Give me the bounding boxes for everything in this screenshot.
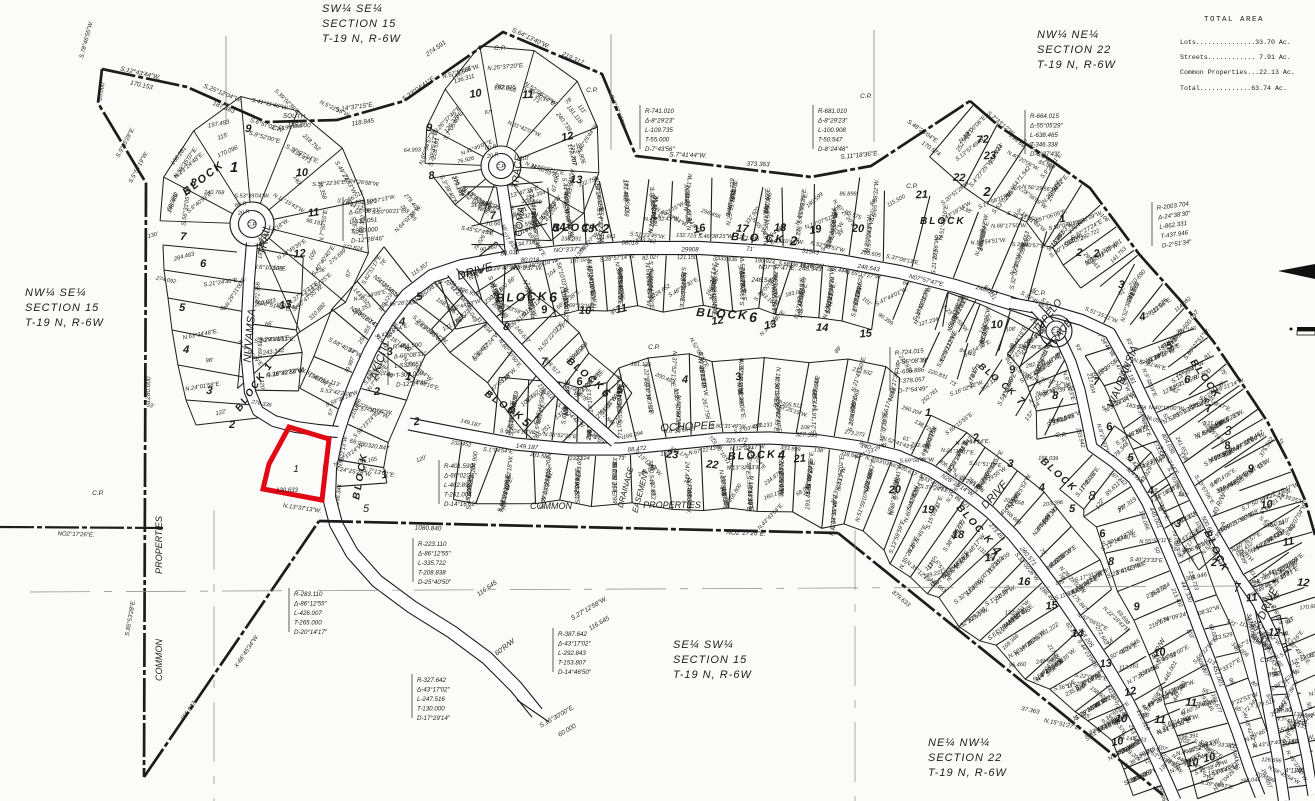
svg-text:T-19 N, R-6W: T-19 N, R-6W	[928, 767, 1007, 779]
svg-text:14: 14	[816, 322, 829, 335]
svg-text:373.363: 373.363	[746, 161, 770, 169]
svg-text:R-387.642: R-387.642	[558, 631, 587, 638]
svg-text:232.224: 232.224	[568, 456, 589, 462]
svg-text:64.993: 64.993	[404, 147, 422, 154]
svg-text:S.69°08'45"W.: S.69°08'45"W.	[899, 457, 935, 464]
svg-text:132.241: 132.241	[575, 478, 581, 500]
svg-text:6: 6	[749, 309, 758, 326]
svg-text:S.46°38'23"W.: S.46°38'23"W.	[698, 234, 734, 240]
svg-text:1: 1	[293, 464, 299, 475]
svg-text:TOTAL AREA: TOTAL AREA	[1204, 16, 1264, 24]
svg-text:9: 9	[426, 122, 433, 134]
svg-text:102': 102'	[1180, 738, 1192, 745]
svg-text:R-283.110: R-283.110	[294, 591, 323, 598]
svg-text:21: 21	[914, 189, 928, 202]
svg-text:T-208.838: T-208.838	[418, 570, 446, 577]
svg-text:D-25°40′50″: D-25°40′50″	[418, 579, 452, 586]
svg-text:T-55.000: T-55.000	[645, 137, 670, 144]
svg-text:T-50.547: T-50.547	[818, 137, 843, 144]
svg-text:2: 2	[789, 233, 799, 248]
svg-text:PROPERTIES: PROPERTIES	[643, 500, 701, 510]
svg-text:71': 71'	[746, 246, 755, 253]
svg-text:SECTION 15: SECTION 15	[673, 654, 747, 666]
svg-text:238.391: 238.391	[560, 236, 581, 242]
svg-text:NO°3′37″W.: NO°3′37″W.	[511, 266, 543, 272]
svg-text:3: 3	[1118, 279, 1125, 291]
svg-text:SECTION 22: SECTION 22	[1037, 44, 1111, 56]
svg-text:8: 8	[1108, 556, 1115, 568]
svg-text:S.53°39'04"W.: S.53°39'04"W.	[234, 194, 270, 200]
svg-text:C.P.: C.P.	[494, 45, 506, 52]
svg-text:C.P.: C.P.	[860, 93, 872, 100]
svg-text:6: 6	[549, 289, 558, 305]
svg-text:R-741.010: R-741.010	[645, 108, 674, 115]
svg-text:L-247.516: L-247.516	[417, 696, 445, 703]
svg-text:155.839: 155.839	[1268, 570, 1288, 576]
svg-text:2: 2	[412, 416, 421, 429]
svg-text:NW¼ NE¼: NW¼ NE¼	[1037, 29, 1099, 41]
svg-text:C.P.: C.P.	[1055, 432, 1067, 439]
svg-text:T-19 N, R-6W: T-19 N, R-6W	[322, 33, 401, 45]
svg-text:T-19 N, R-6W: T-19 N, R-6W	[25, 317, 104, 329]
svg-text:108': 108'	[1005, 326, 1017, 333]
svg-text:R-223.110: R-223.110	[418, 541, 447, 548]
svg-text:3: 3	[206, 385, 213, 398]
svg-text:15: 15	[859, 327, 873, 340]
svg-text:110': 110'	[519, 156, 530, 163]
svg-text:L-462.892: L-462.892	[444, 482, 472, 489]
svg-text:16: 16	[1018, 576, 1032, 589]
svg-text:Common Properties...22.13 Ac.: Common Properties...22.13 Ac.	[1180, 69, 1295, 76]
svg-text:10: 10	[1260, 498, 1274, 512]
svg-text:SECTION 15: SECTION 15	[322, 18, 396, 30]
svg-text:65': 65'	[1083, 714, 1091, 720]
svg-text:86.899: 86.899	[839, 192, 856, 198]
svg-text:T-130.000: T-130.000	[417, 706, 445, 713]
svg-text:80.018: 80.018	[521, 258, 540, 264]
svg-text:C.P.: C.P.	[496, 164, 505, 170]
svg-text:121.150: 121.150	[677, 255, 698, 261]
svg-text:12: 12	[1123, 685, 1137, 699]
svg-text:S.40°23'33"E.: S.40°23'33"E.	[1129, 557, 1164, 564]
svg-text:130.633: 130.633	[276, 488, 298, 494]
svg-text:10: 10	[990, 319, 1004, 332]
svg-text:T-19 N, R-6W: T-19 N, R-6W	[673, 669, 752, 681]
svg-text:T-19 N, R-6W: T-19 N, R-6W	[1037, 59, 1116, 71]
svg-text:4: 4	[681, 374, 688, 386]
svg-text:COMMON: COMMON	[530, 501, 572, 511]
svg-text:13: 13	[279, 298, 293, 312]
svg-text:T-153.807: T-153.807	[558, 660, 586, 667]
svg-text:133': 133'	[1178, 492, 1190, 499]
svg-text:166.039: 166.039	[1038, 456, 1058, 463]
svg-text:182.075: 182.075	[494, 85, 516, 91]
svg-text:C.P.: C.P.	[906, 183, 918, 190]
svg-text:T-265.000: T-265.000	[294, 620, 322, 627]
svg-text:C.P.: C.P.	[92, 490, 104, 497]
svg-text:3: 3	[1175, 518, 1181, 530]
svg-text:S.20°46'11"E.: S.20°46'11"E.	[259, 337, 296, 344]
svg-text:Total.............63.74 Ac.: Total.............63.74 Ac.	[1180, 85, 1287, 92]
svg-text:COMMON: COMMON	[154, 639, 164, 681]
svg-text:SECTION 15: SECTION 15	[25, 302, 99, 314]
svg-text:4: 4	[777, 447, 787, 462]
svg-text:L-100.908: L-100.908	[818, 127, 846, 134]
svg-text:11: 11	[522, 89, 534, 101]
svg-text:1080.840: 1080.840	[415, 525, 442, 533]
svg-text:Δ-66°02′31″: Δ-66°02′31″	[443, 473, 477, 480]
svg-text:D-14°16′02″: D-14°16′02″	[444, 501, 478, 508]
svg-text:D-17°29′14″: D-17°29′14″	[417, 715, 451, 722]
svg-text:Lots...............33.70 Ac.: Lots...............33.70 Ac.	[1180, 39, 1291, 46]
svg-text:254.799: 254.799	[610, 481, 617, 505]
svg-text:73': 73'	[618, 456, 626, 462]
svg-text:2: 2	[982, 184, 991, 199]
svg-text:121.072: 121.072	[1204, 420, 1225, 427]
svg-text:57': 57'	[679, 274, 685, 283]
svg-text:3: 3	[1007, 458, 1014, 471]
svg-text:278.691: 278.691	[256, 336, 262, 357]
svg-text:Streets............ 7.91 Ac.: Streets............ 7.91 Ac.	[1180, 54, 1291, 61]
svg-text:Δ-8°29′23″: Δ-8°29′23″	[817, 118, 848, 125]
svg-text:Δ-43°17′02″: Δ-43°17′02″	[416, 687, 450, 694]
svg-text:29908: 29908	[680, 247, 699, 254]
svg-text:L-292.843: L-292.843	[558, 650, 586, 657]
svg-text:Δ-43°17′02″: Δ-43°17′02″	[557, 641, 591, 648]
svg-text:12: 12	[560, 130, 574, 144]
svg-text:20: 20	[887, 484, 902, 497]
svg-text:94': 94'	[646, 406, 653, 415]
svg-text:Δ-8°29′23″: Δ-8°29′23″	[644, 118, 675, 125]
svg-text:1: 1	[230, 159, 238, 176]
svg-text:18: 18	[952, 529, 965, 541]
svg-text:23: 23	[983, 150, 997, 162]
svg-text:2: 2	[1075, 247, 1083, 259]
svg-text:22: 22	[705, 458, 719, 471]
svg-text:C.P.: C.P.	[648, 344, 660, 351]
svg-text:67': 67'	[485, 110, 493, 116]
svg-text:SECTION 22: SECTION 22	[928, 752, 1002, 764]
svg-text:240.768: 240.768	[203, 190, 225, 196]
svg-text:132': 132'	[1005, 610, 1016, 616]
svg-text:2: 2	[228, 419, 235, 431]
svg-text:19: 19	[922, 504, 936, 516]
svg-text:8: 8	[1088, 488, 1096, 503]
svg-text:R-681.010: R-681.010	[818, 108, 847, 115]
svg-text:11: 11	[1154, 714, 1166, 726]
svg-text:L-426.007: L-426.007	[294, 610, 322, 617]
svg-text:1: 1	[925, 407, 931, 419]
svg-text:Δ-86°12′55″: Δ-86°12′55″	[417, 551, 451, 558]
svg-text:SW¼ SE¼: SW¼ SE¼	[322, 3, 383, 15]
svg-text:SE¼ SW¼: SE¼ SW¼	[673, 639, 734, 651]
svg-text:121.729: 121.729	[730, 177, 737, 200]
svg-text:R-401.590: R-401.590	[444, 463, 473, 470]
svg-text:N.13°32'33"E.: N.13°32'33"E.	[727, 465, 762, 472]
svg-text:Δ-55°05′29″: Δ-55°05′29″	[1029, 123, 1063, 130]
svg-text:N.65°28'35"W.: N.65°28'35"W.	[867, 214, 874, 253]
svg-text:5: 5	[1069, 503, 1076, 515]
svg-text:97: 97	[934, 235, 943, 242]
svg-text:3: 3	[1224, 423, 1232, 438]
svg-text:L-638.465: L-638.465	[1030, 132, 1058, 139]
svg-text:5: 5	[617, 384, 624, 396]
svg-text:181.125: 181.125	[631, 362, 652, 368]
svg-text:R-327.642: R-327.642	[417, 677, 446, 684]
svg-text:83.219: 83.219	[610, 462, 616, 481]
svg-text:S.21°16'54"E.: S.21°16'54"E.	[811, 397, 818, 434]
svg-text:S.7°41′44″W.: S.7°41′44″W.	[669, 150, 707, 159]
svg-text:327.391: 327.391	[795, 431, 818, 439]
svg-text:NE¼ NW¼: NE¼ NW¼	[928, 737, 990, 749]
svg-text:T-261.004: T-261.004	[444, 492, 472, 499]
svg-text:98': 98'	[205, 358, 214, 365]
svg-text:R-664.015: R-664.015	[1030, 113, 1059, 120]
svg-text:21: 21	[792, 453, 806, 466]
svg-text:D-20°14′17″: D-20°14′17″	[294, 629, 328, 636]
svg-text:7: 7	[1233, 580, 1241, 595]
svg-text:1280.000: 1280.000	[145, 376, 153, 403]
svg-text:N.49°32'43"W.: N.49°32'43"W.	[644, 216, 680, 223]
svg-text:C.P.: C.P.	[247, 222, 256, 228]
svg-text:N.40°18'00"W.: N.40°18'00"W.	[1149, 405, 1185, 412]
svg-text:N.68°17'50"W.: N.68°17'50"W.	[991, 223, 1027, 230]
svg-text:NW¼ SE¼: NW¼ SE¼	[25, 287, 86, 299]
svg-text:4: 4	[1037, 482, 1045, 494]
svg-text:4: 4	[1146, 485, 1154, 498]
svg-text:D-14°46′50″: D-14°46′50″	[558, 669, 592, 676]
svg-text:PROPERTIES: PROPERTIES	[154, 516, 164, 574]
svg-text:14: 14	[1071, 628, 1084, 641]
svg-text:D-8°24′48″: D-8°24′48″	[818, 146, 848, 153]
svg-text:C.P.: C.P.	[586, 87, 598, 94]
svg-text:7: 7	[541, 356, 548, 368]
svg-text:Δ-86°12′55″: Δ-86°12′55″	[293, 601, 327, 608]
svg-text:95.460: 95.460	[1009, 662, 1027, 669]
svg-text:L-335.722: L-335.722	[418, 560, 446, 567]
svg-text:4: 4	[182, 344, 190, 356]
svg-text:12: 12	[1297, 577, 1310, 590]
svg-text:2: 2	[601, 221, 610, 236]
svg-text:C.P.: C.P.	[1260, 657, 1272, 664]
svg-text:L-109.735: L-109.735	[645, 127, 673, 134]
svg-text:5: 5	[363, 503, 370, 515]
svg-text:13: 13	[1099, 658, 1112, 671]
